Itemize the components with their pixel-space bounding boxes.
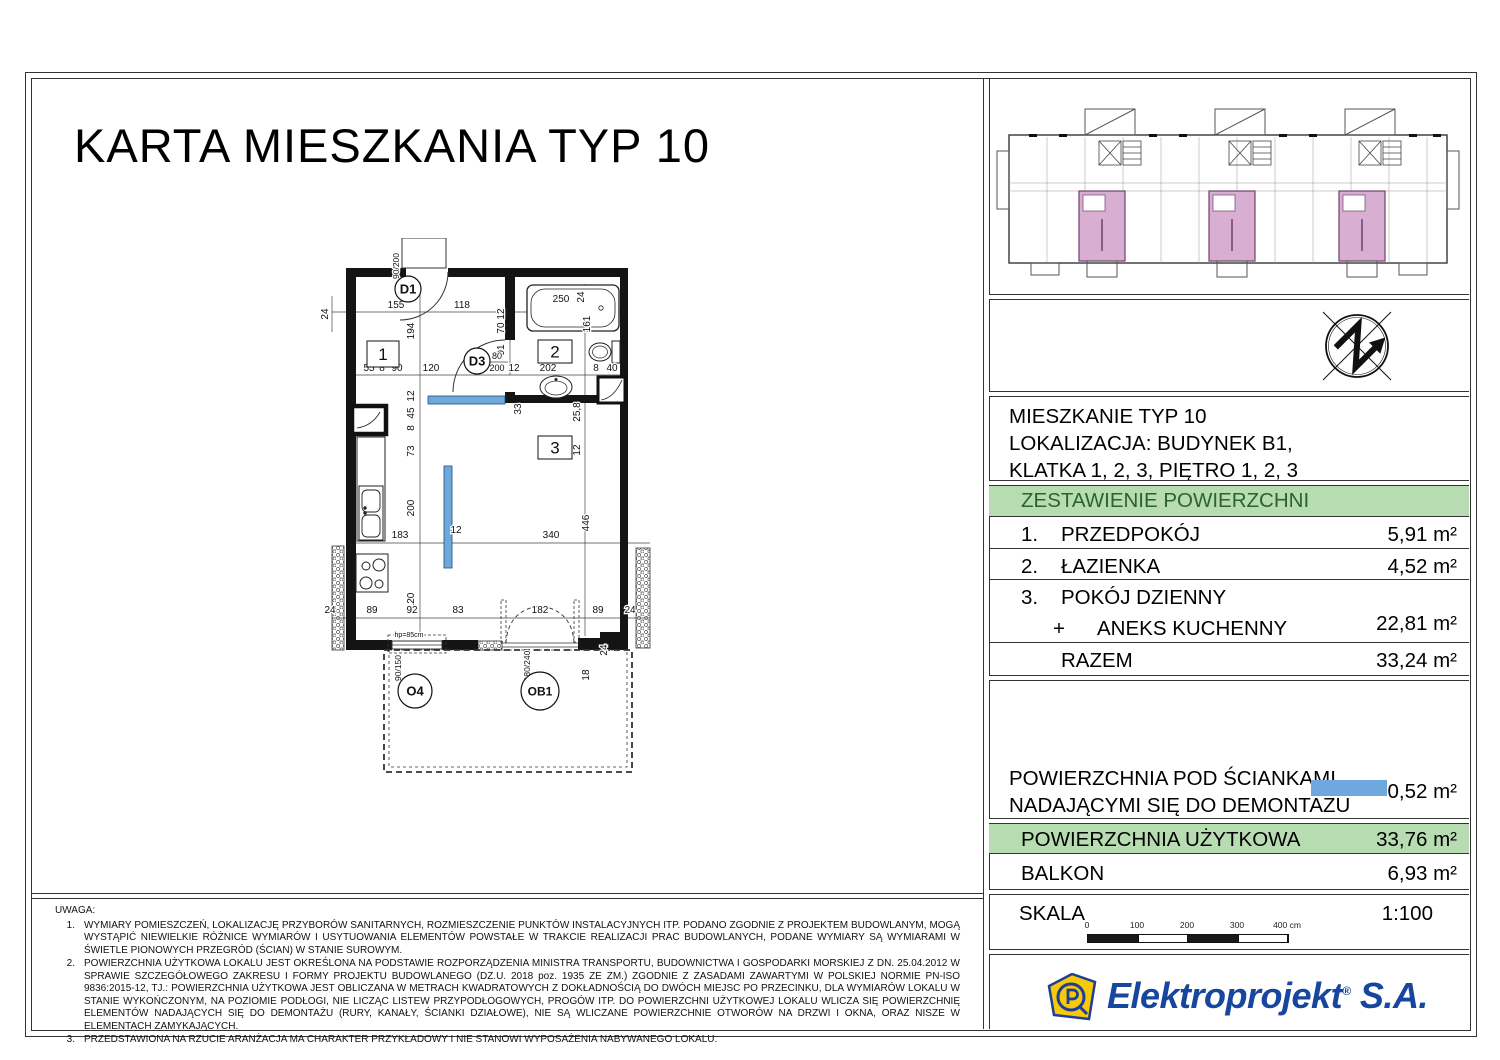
area-row-lazienka: 2. ŁAZIENKA 4,52 m² (989, 549, 1469, 580)
room-area: 5,91 m² (1388, 523, 1458, 547)
dimension-label: 89 (592, 605, 604, 616)
dimension-label: 8 (406, 425, 417, 431)
dimension-label: 12 (572, 444, 583, 456)
room-number: 1 (378, 345, 387, 364)
scale-tick: 300 (1230, 920, 1244, 930)
dimension-label: 200 (406, 499, 417, 516)
note-number: 2. (55, 958, 75, 1033)
dimension-label: 90/200 (391, 253, 401, 279)
note-item: 1.WYMIARY POMIESZCZEŃ, LOKALIZACJĘ PRZYB… (55, 920, 960, 958)
scale-tick: 100 (1130, 920, 1144, 930)
roof-shafts (1085, 109, 1395, 135)
demountable-label-line2: NADAJĄCYMI SIĘ DO DEMONTAŻU (1009, 794, 1350, 818)
dimension-label: 8 (593, 363, 599, 374)
balcony-label: BALKON (1021, 862, 1104, 886)
room-name: ŁAZIENKA (1061, 555, 1160, 579)
dimension-label: 83 (452, 605, 464, 616)
dimension-label: 161 (582, 315, 593, 332)
dimension-label: 24 (324, 605, 336, 616)
dimension-label: 89 (366, 605, 378, 616)
note-item: 3.PRZEDSTAWIONA NA RZUCIE ARANŻACJA MA C… (55, 1034, 960, 1047)
note-text: PRZEDSTAWIONA NA RZUCIE ARANŻACJA MA CHA… (84, 1034, 960, 1047)
dimension-label: 446 (581, 514, 592, 531)
demountable-blue-swatch (1311, 780, 1387, 796)
scale-bar (1087, 934, 1289, 943)
dimension-label: 118 (454, 300, 470, 311)
note-text: POWIERZCHNIA UŻYTKOWA LOKALU JEST OKREŚL… (84, 958, 960, 1033)
dimension-label: 24 (624, 605, 636, 616)
balcony-value: 6,93 m² (1388, 862, 1458, 886)
opening-label: D1 (400, 282, 417, 297)
room-number: 3 (550, 439, 559, 458)
dimension-label: 90/150 (393, 655, 403, 681)
dimension-label: 182 (532, 605, 549, 616)
dimension-label: 24 (599, 644, 610, 656)
balcony-outline (384, 650, 632, 772)
balcony-row: BALKON 6,93 m² (989, 855, 1469, 889)
sheet: KARTA MIESZKANIA TYP 10 (0, 0, 1500, 1060)
dimension-label: 24 (320, 308, 331, 320)
demountable-area-value: 0,52 m² (1388, 780, 1458, 804)
logo-text: Elektroprojekt® S.A. (1107, 975, 1428, 1017)
dimension-label: 80 (492, 351, 502, 361)
note-item: 2.POWIERZCHNIA UŻYTKOWA LOKALU JEST OKRE… (55, 958, 960, 1033)
scale-tick: 400 cm (1273, 920, 1301, 930)
apartment-type: MIESZKANIE TYP 10 (1009, 403, 1489, 430)
dimension-label: 18 (581, 669, 592, 681)
apartment-location: LOKALIZACJA: BUDYNEK B1, (1009, 430, 1489, 457)
dimension-label: 12 (406, 390, 417, 402)
notes-section: UWAGA: 1.WYMIARY POMIESZCZEŃ, LOKALIZACJ… (55, 905, 960, 1048)
dimension-label: 250 (553, 294, 570, 305)
room-name: PRZEDPOKÓJ (1061, 523, 1200, 547)
dimension-label: 70 (496, 322, 507, 334)
dimension-label: 33 (513, 403, 524, 415)
dimension-label: 12 (496, 308, 507, 320)
kitchen-fixtures (352, 406, 388, 592)
dimension-label: 12 (508, 363, 520, 374)
row-number: 2. (1021, 555, 1038, 579)
scale-bar-segment (1238, 935, 1288, 942)
usable-area-value: 33,76 m² (1376, 828, 1457, 852)
dimension-label: 183 (392, 530, 409, 541)
total-label: RAZEM (1061, 649, 1133, 673)
scale-bar-segment (1188, 935, 1238, 942)
scale-value: 1:100 (1382, 902, 1433, 926)
area-row-przedpokoj: 1. PRZEDPOKÓJ 5,91 m² (989, 517, 1469, 549)
area-row-razem: RAZEM 33,24 m² (989, 643, 1469, 675)
scale-bar-segment (1138, 935, 1188, 942)
demountable-partitions (428, 396, 505, 568)
note-number: 3. (55, 1034, 75, 1047)
scale-tick: 200 (1180, 920, 1194, 930)
page-title: KARTA MIESZKANIA TYP 10 (74, 118, 710, 173)
note-text: WYMIARY POMIESZCZEŃ, LOKALIZACJĘ PRZYBOR… (84, 920, 960, 958)
scale-bar-segment (1088, 935, 1138, 942)
floor-plan-drawing: 241551182502490/200194127091161558901208… (320, 238, 672, 788)
opening-label: O4 (406, 684, 424, 699)
dimension-label: 45 (406, 407, 417, 419)
dimension-label: 40 (606, 363, 618, 374)
room-name: POKÓJ DZIENNY (1061, 586, 1226, 610)
dimension-label: 155 (388, 300, 405, 311)
usable-area-row: POWIERZCHNIA UŻYTKOWA 33,76 m² (989, 824, 1469, 854)
dimension-label: hp=85cm (395, 632, 424, 639)
company-logo: Elektroprojekt® S.A. (989, 955, 1469, 1028)
dimension-label: 25,8 (572, 402, 583, 422)
dimension-label: 92 (406, 605, 418, 616)
dimension-label: 24 (576, 291, 587, 303)
notes-separator (31, 893, 983, 899)
room-area: 22,81 m² (1376, 612, 1457, 636)
building-key-plan (989, 79, 1469, 293)
room-number: 2 (550, 343, 559, 362)
room-area: 4,52 m² (1388, 555, 1458, 579)
note-number: 1. (55, 920, 75, 958)
dimension-label: 194 (406, 322, 417, 339)
row-number: 1. (1021, 523, 1038, 547)
dimension-label: 120 (423, 363, 440, 374)
dimension-label: 200 (489, 363, 504, 373)
scale-box: SKALA 1:100 0100200300400 cm (989, 895, 1469, 949)
scale-tick: 0 (1085, 920, 1090, 930)
area-table-header: ZESTAWIENIE POWIERZCHNI (989, 486, 1469, 517)
north-arrow (989, 300, 1469, 391)
opening-label: D3 (469, 354, 486, 369)
area-row-pokoj-dzienny: 3. POKÓJ DZIENNY +ANEKS KUCHENNY 22,81 m… (989, 580, 1469, 643)
total-area: 33,24 m² (1376, 649, 1457, 673)
dimension-label: 202 (540, 363, 557, 374)
usable-area-label: POWIERZCHNIA UŻYTKOWA (1021, 828, 1300, 852)
apartment-info: MIESZKANIE TYP 10 LOKALIZACJA: BUDYNEK B… (989, 397, 1489, 486)
room-name-annex: +ANEKS KUCHENNY (1053, 617, 1287, 641)
notes-list: 1.WYMIARY POMIESZCZEŃ, LOKALIZACJĘ PRZYB… (55, 920, 960, 1047)
dimension-label: 73 (406, 445, 417, 457)
opening-label: OB1 (528, 685, 553, 699)
demountable-label-line1: POWIERZCHNIA POD ŚCIANKAMI (1009, 767, 1336, 791)
scale-label: SKALA (1019, 902, 1085, 926)
logo-emblem-icon (1047, 973, 1097, 1023)
dimension-label: 12 (450, 525, 462, 536)
scale-tick-labels: 0100200300400 cm (1087, 920, 1287, 932)
dimension-label: 340 (543, 530, 560, 541)
row-number: 3. (1021, 586, 1038, 610)
notes-heading: UWAGA: (55, 905, 960, 918)
demountable-area-box: POWIERZCHNIA POD ŚCIANKAMI NADAJĄCYMI SI… (989, 681, 1469, 818)
